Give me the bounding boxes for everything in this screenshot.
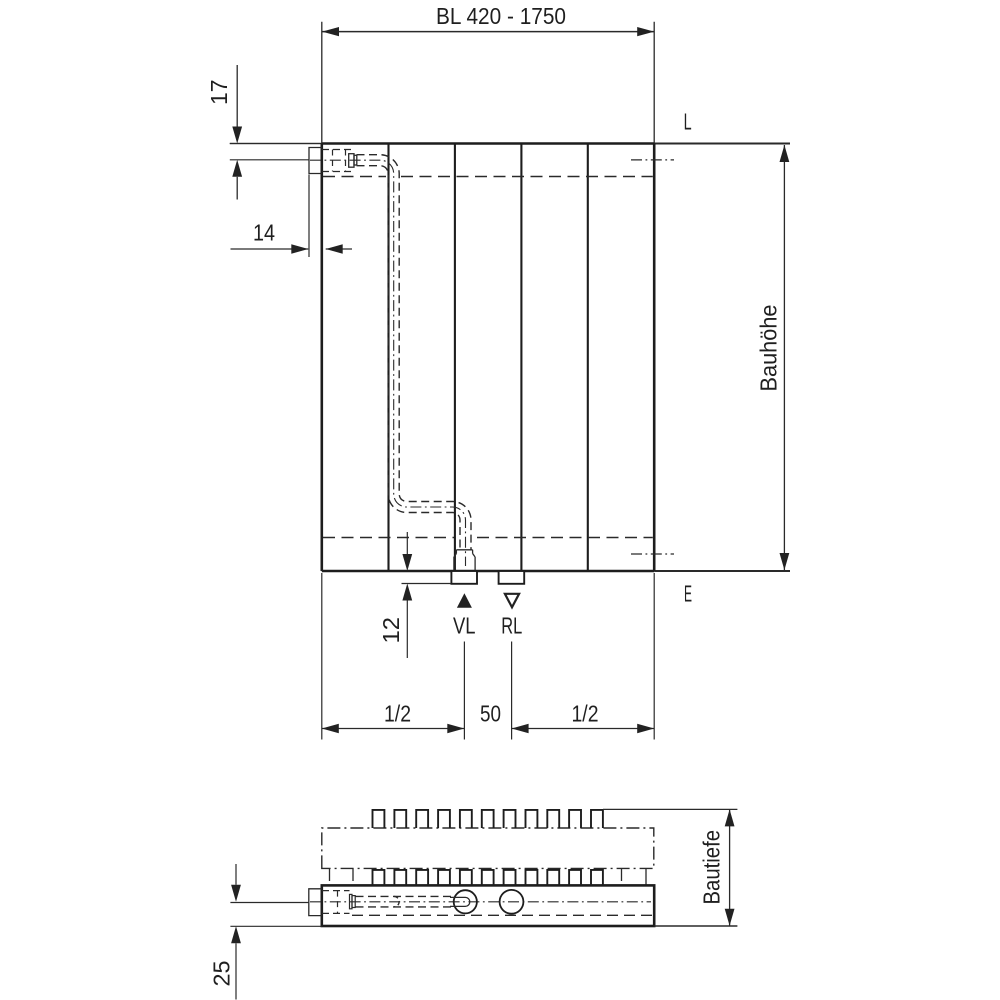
svg-text:14: 14 — [253, 220, 275, 246]
svg-text:E: E — [684, 581, 692, 607]
svg-text:L: L — [684, 108, 692, 134]
svg-text:Bauhöhe: Bauhöhe — [756, 305, 782, 392]
svg-text:17: 17 — [206, 80, 232, 106]
svg-text:BL 420 - 1750: BL 420 - 1750 — [436, 3, 566, 29]
svg-text:50: 50 — [480, 701, 501, 727]
svg-text:1/2: 1/2 — [572, 701, 599, 727]
svg-text:Bautiefe: Bautiefe — [699, 830, 725, 905]
svg-text:VL: VL — [453, 613, 476, 639]
svg-text:1/2: 1/2 — [384, 701, 411, 727]
svg-text:25: 25 — [209, 961, 235, 987]
svg-text:12: 12 — [378, 617, 404, 644]
svg-text:RL: RL — [501, 613, 522, 639]
